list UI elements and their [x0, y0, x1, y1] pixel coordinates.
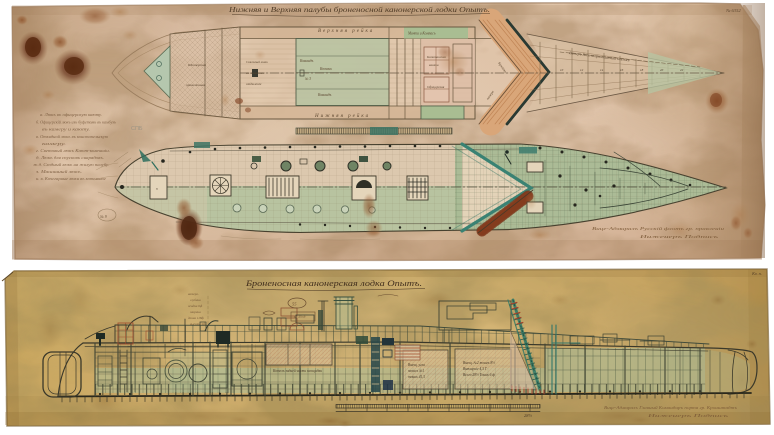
svg-text:20: 20 [660, 68, 664, 72]
svg-text:Вице-Адмиралъ Русскій флотъ гр: Вице-Адмиралъ Русскій флотъ гр. правлені… [592, 226, 724, 231]
svg-text:ширина: ширина [190, 310, 201, 314]
svg-text:запасъ №1: запасъ №1 [407, 369, 424, 373]
svg-text:Командъ: Командъ [299, 59, 314, 63]
svg-text:Инженеръ Подпись: Инженеръ Подпись [638, 234, 719, 239]
svg-text:Вмещ. №2 тоннъ 8½: Вмещ. №2 тоннъ 8½ [463, 361, 495, 365]
svg-text:Шкиперская: Шкиперская [187, 63, 206, 67]
svg-text:д. Люкъ для спусковъ снарядовъ: д. Люкъ для спусковъ снарядовъ. [36, 155, 104, 160]
svg-text:б. Офицерскій люкъ изъ буфетом: б. Офицерскій люкъ изъ буфетомъ въ камбу… [36, 120, 117, 125]
svg-text:ватерл.: ватерл. [188, 292, 199, 296]
svg-text:Нижняя и Верхняя палубы бронен: Нижняя и Верхняя палубы броненосной кано… [228, 6, 491, 14]
svg-text:Свѣтлый люкъ: Свѣтлый люкъ [246, 59, 268, 64]
svg-text:въ камеру и каюту.: въ камеру и каюту. [42, 127, 90, 132]
svg-text:Броненосная канонерская лодка: Броненосная канонерская лодка Опытъ. [245, 278, 422, 288]
svg-text:въ машинное: въ машинное [246, 71, 265, 75]
svg-text:Вмещ. угля: Вмещ. угля [408, 363, 425, 367]
svg-text:осадка 6ф: осадка 6ф [188, 304, 203, 308]
svg-text:а. Люкъ въ офицерскую каюту.: а. Люкъ въ офицерскую каюту. [40, 112, 102, 117]
svg-text:28½: 28½ [524, 413, 533, 418]
svg-text:10: 10 [560, 68, 564, 72]
svg-text:22: 22 [680, 68, 684, 72]
svg-text:з: з [155, 186, 158, 191]
svg-text:№ 9: № 9 [99, 214, 107, 219]
svg-text:высота 9ф: высота 9ф [190, 322, 206, 326]
svg-text:Инженеръ Подпись: Инженеръ Подпись [646, 413, 729, 418]
svg-text:провизіонная: провизіонная [186, 83, 205, 87]
svg-text:Нижняя рейка: Нижняя рейка [314, 113, 370, 119]
svg-text:№ 3: № 3 [304, 77, 311, 81]
svg-text:Котелъ задней части площадки: Котелъ задней части площадки [272, 368, 322, 373]
svg-text:18: 18 [640, 68, 644, 72]
svg-text:Къ п.: Къ п. [751, 271, 762, 276]
svg-text:Вице-Адмиралъ Главный Командир: Вице-Адмиралъ Главный Командиръ порта гр… [604, 405, 737, 410]
svg-text:м. 3½ д: м. 3½ д [293, 315, 305, 319]
svg-text:длина 118ф: длина 118ф [188, 316, 205, 320]
svg-text:отдѣленіе: отдѣленіе [246, 82, 262, 86]
svg-text:ж.д. Сходный люкъ на жилую пал: ж.д. Сходный люкъ на жилую палубу. [33, 162, 109, 167]
svg-text:№ 6352: № 6352 [725, 8, 741, 13]
svg-text:55: 55 [292, 302, 297, 307]
svg-text:Кюпенъ: Кюпенъ [319, 67, 332, 71]
svg-text:и. в. Кочегарные люки въ котел: и. в. Кочегарные люки въ котельное [36, 176, 106, 181]
svg-text:14: 14 [600, 68, 604, 72]
svg-text:Верхняя рейка: Верхняя рейка [318, 28, 374, 34]
svg-text:16: 16 [620, 68, 624, 72]
svg-text:Всего 28½ Тоннъ 6 ф: Всего 28½ Тоннъ 6 ф [463, 373, 495, 377]
svg-text:з. Машинный люкъ.: з. Машинный люкъ. [35, 169, 82, 174]
svg-text:г. Световый люкъ Кают-компаніи: г. Световый люкъ Кают-компаніи. [36, 148, 110, 153]
svg-text:Офицерская: Офицерская [427, 85, 445, 89]
svg-text:в. Откидной люкъ въ констапель: в. Откидной люкъ въ констапельскую [36, 134, 108, 139]
svg-text:12: 12 [580, 68, 584, 72]
svg-text:глубина: глубина [190, 298, 201, 302]
svg-text:СПБ: СПБ [131, 126, 143, 132]
svg-text:Мачта и Компасъ: Мачта и Компасъ [407, 32, 436, 36]
svg-text:Командъ: Командъ [317, 93, 332, 97]
svg-text:камеру.: камеру. [42, 141, 66, 146]
